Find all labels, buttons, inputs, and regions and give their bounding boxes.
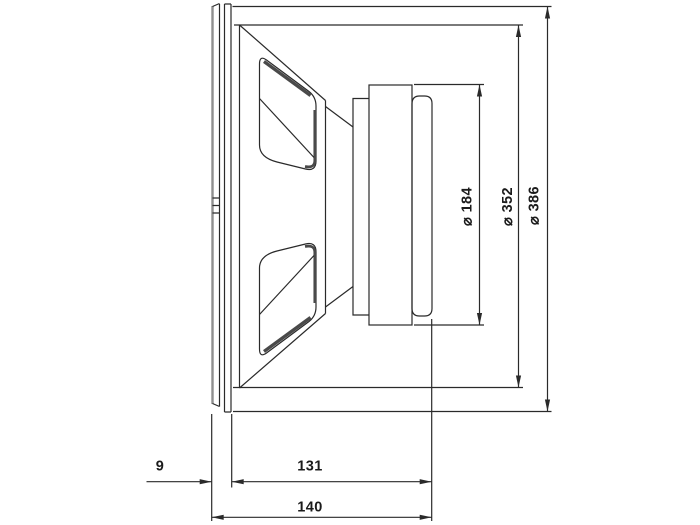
magnet-spacer xyxy=(353,99,369,316)
dimension-width-140: 140 xyxy=(212,500,432,520)
diameter-184-label: ⌀ 184 xyxy=(460,187,476,226)
magnet-assembly xyxy=(353,85,432,325)
loudspeaker-drawing-svg: ⌀ 386 ⌀ 352 ⌀ 184 9 131 xyxy=(0,0,700,525)
flange-plate xyxy=(225,4,232,412)
arrowhead-184-bottom xyxy=(477,313,482,325)
arrowhead-352-top xyxy=(516,25,521,37)
basket-frame xyxy=(240,25,354,388)
basket-edge-bottom xyxy=(240,314,326,389)
vent-window-upper-outline xyxy=(260,58,317,169)
arrowhead-140-right xyxy=(420,515,432,520)
vent-window-lower-outline xyxy=(260,244,317,355)
vent-window-lower-shading-right xyxy=(305,246,315,303)
arrowhead-9 xyxy=(200,479,212,484)
width-9-label: 9 xyxy=(156,459,164,475)
mounting-flange xyxy=(225,4,232,412)
dimension-width-9: 9 xyxy=(147,459,212,485)
gasket-top-cap xyxy=(213,4,220,7)
arrowhead-386-top xyxy=(545,7,550,19)
cone-line-lower xyxy=(260,256,315,315)
basket-leg-bottom xyxy=(326,287,354,308)
arrowhead-386-bottom xyxy=(545,400,550,412)
gasket-bottom-cap xyxy=(213,404,220,407)
arrowhead-184-top xyxy=(477,85,482,97)
basket-leg-top xyxy=(326,107,354,128)
arrowhead-352-bottom xyxy=(516,376,521,388)
diameter-386-label: ⌀ 386 xyxy=(527,186,543,225)
gasket-ring xyxy=(213,4,220,407)
technical-drawing: ⌀ 386 ⌀ 352 ⌀ 184 9 131 xyxy=(0,0,700,525)
dimension-width-131: 131 xyxy=(232,459,432,485)
magnet-front-plate xyxy=(369,85,412,325)
magnet-body xyxy=(412,96,432,316)
dimension-width-group: 9 131 140 xyxy=(147,319,432,521)
basket-edge-top xyxy=(240,25,326,101)
vent-window-lower xyxy=(260,244,317,355)
vent-window-upper xyxy=(260,58,317,169)
arrowhead-140-left xyxy=(212,515,224,520)
diameter-352-label: ⌀ 352 xyxy=(500,187,516,226)
vent-window-upper-shading-right xyxy=(305,110,315,167)
dimension-diameter-184: ⌀ 184 xyxy=(414,85,484,326)
arrowhead-131-right xyxy=(420,479,432,484)
width-131-label: 131 xyxy=(297,459,322,475)
width-140-label: 140 xyxy=(297,500,322,516)
speaker-side-view xyxy=(213,4,433,413)
arrowhead-131-left xyxy=(232,479,244,484)
cone-line-upper xyxy=(260,99,315,158)
